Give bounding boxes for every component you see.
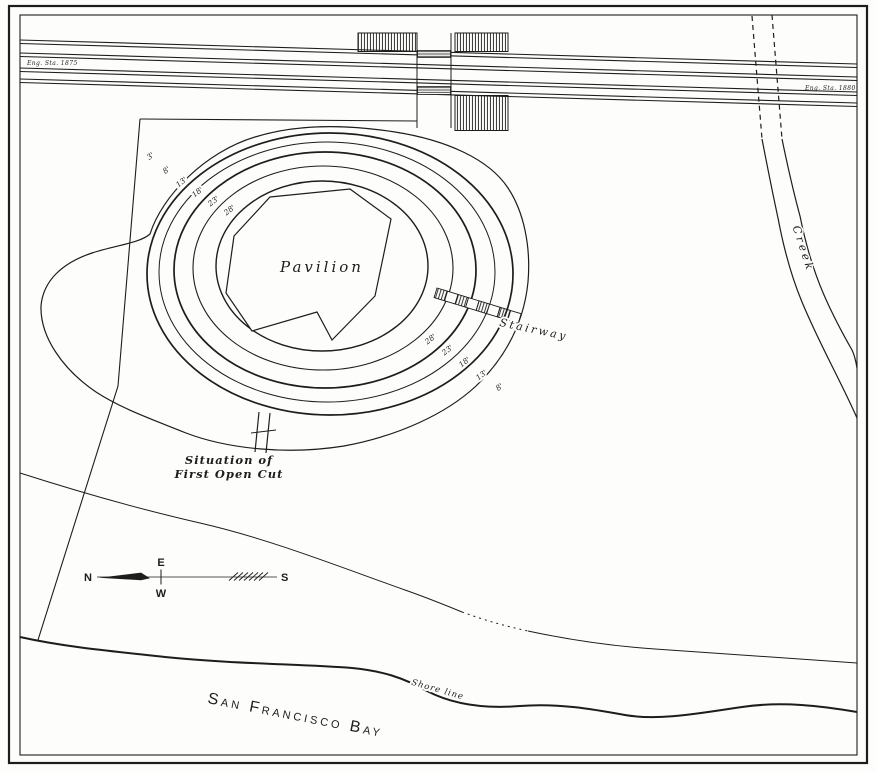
compass-w-label: W xyxy=(156,588,167,600)
station-label-left: Eng. Sta. 1875 xyxy=(26,60,78,67)
map-canvas: Eng. Sta. 1875 Eng. Sta. 1880 Creek 3' xyxy=(0,0,876,773)
compass-e-label: E xyxy=(157,557,164,569)
open-cut-label-line2: First Open Cut xyxy=(174,467,284,481)
pavilion-label: Pavilion xyxy=(279,258,364,276)
platform-block-upper-right xyxy=(455,33,508,52)
platform-block-upper-left xyxy=(358,33,417,52)
crossing-pad-hatch xyxy=(418,87,451,95)
survey-map-page: Eng. Sta. 1875 Eng. Sta. 1880 Creek 3' xyxy=(0,0,876,773)
compass-s-label: S xyxy=(281,572,288,584)
compass-n-label: N xyxy=(84,572,92,584)
platform-block-lower xyxy=(455,96,508,131)
open-cut-label-line1: Situation of xyxy=(185,453,274,467)
station-label-right: Eng. Sta. 1880 xyxy=(804,85,856,92)
paper-background xyxy=(0,0,876,773)
crossing-pad-hatch xyxy=(418,51,451,58)
